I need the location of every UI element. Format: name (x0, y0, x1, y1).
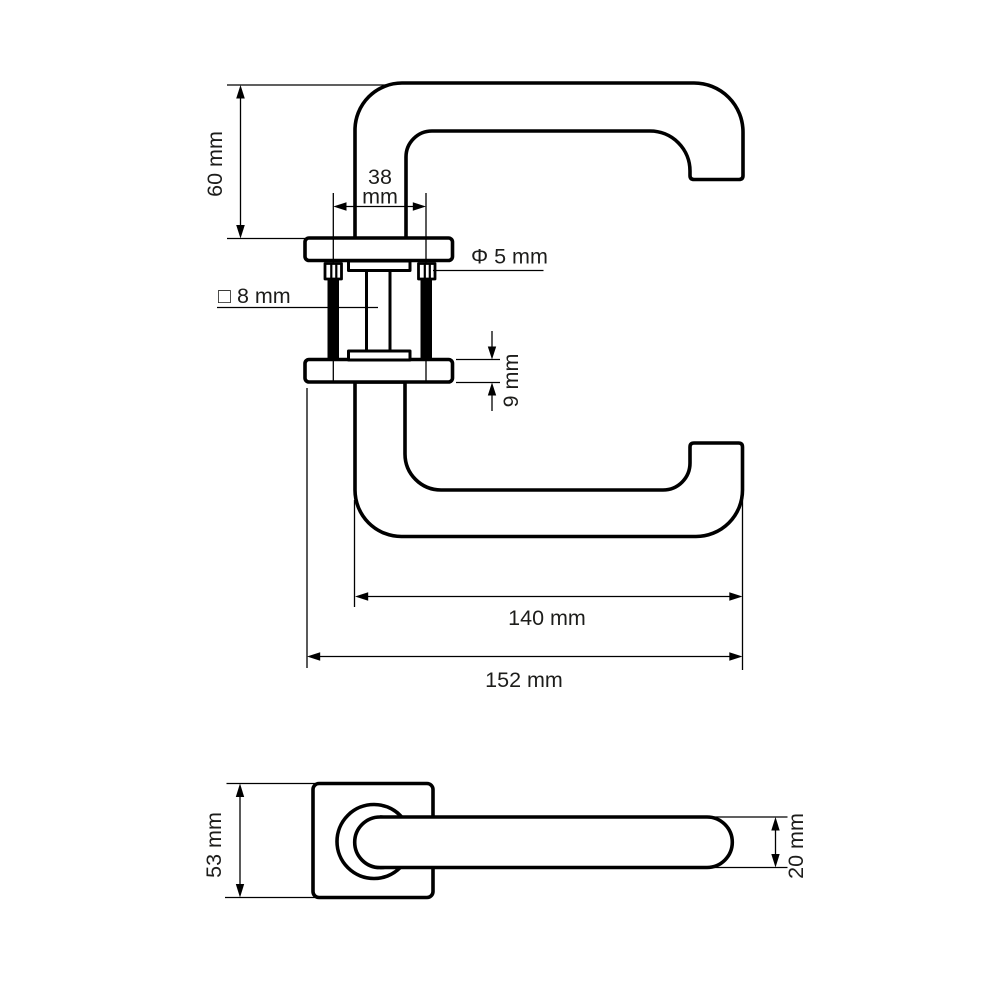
screw-right (419, 264, 436, 361)
dimension-152mm-label: 152 mm (485, 668, 563, 692)
dimension-140mm-label: 140 mm (508, 606, 586, 630)
lower-rose-plate (305, 360, 453, 383)
spindle-bar (367, 265, 391, 356)
dimension-screw-diameter-label: Φ 5 mm (471, 245, 548, 269)
dimension-38mm-label-line2: mm (362, 185, 398, 209)
side-view: 60 mm 38 mm Φ 5 mm □ 8 mm 9 mm (203, 83, 743, 692)
dimension-60mm-label: 60 mm (203, 131, 227, 197)
upper-lever-outline (355, 83, 743, 239)
front-view: 53 mm 20 mm (202, 784, 808, 898)
lower-lever-outline (355, 382, 743, 537)
lever-front (380, 817, 732, 868)
dimension-9mm (456, 331, 500, 411)
dimension-53mm-label: 53 mm (202, 812, 226, 878)
technical-drawing-page: 60 mm 38 mm Φ 5 mm □ 8 mm 9 mm (0, 0, 1000, 1000)
upper-bearing-plate (349, 261, 411, 271)
dimension-spindle-square-label: □ 8 mm (218, 284, 291, 308)
lower-bearing-plate (349, 351, 411, 360)
dimension-53mm (225, 784, 315, 898)
door-handle-drawing: 60 mm 38 mm Φ 5 mm □ 8 mm 9 mm (0, 0, 1000, 1000)
screw-left (325, 264, 342, 361)
dimension-9mm-label: 9 mm (499, 354, 523, 408)
upper-rose-plate (305, 238, 453, 261)
dimension-20mm-label: 20 mm (784, 813, 808, 879)
